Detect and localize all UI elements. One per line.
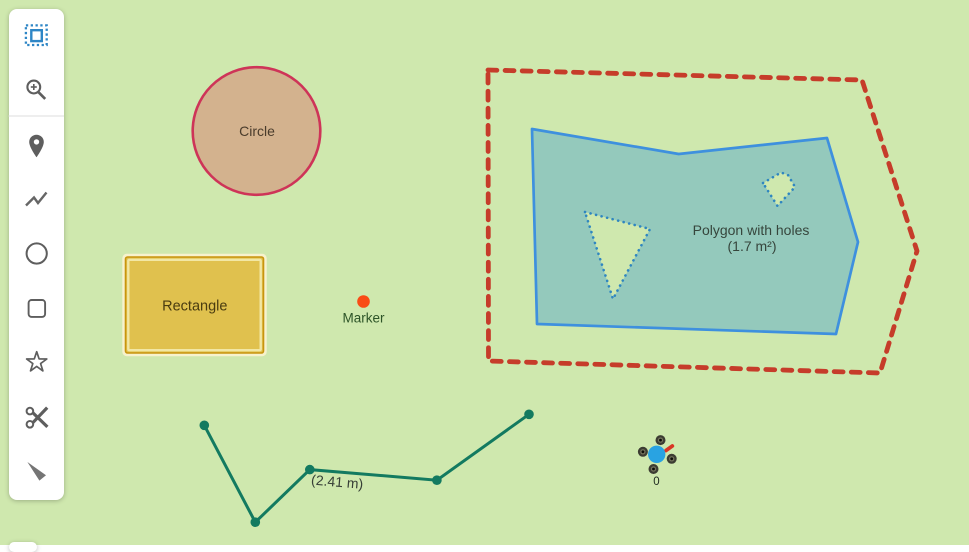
svg-text:Polygon with holes: Polygon with holes	[693, 222, 810, 238]
svg-text:Circle: Circle	[239, 123, 275, 139]
svg-text:Marker: Marker	[342, 311, 385, 326]
svg-text:Rectangle: Rectangle	[162, 299, 227, 315]
svg-text:(1.7 m²): (1.7 m²)	[728, 238, 777, 254]
svg-text:0: 0	[653, 476, 659, 488]
svg-text:(2.41 m): (2.41 m)	[311, 472, 364, 492]
